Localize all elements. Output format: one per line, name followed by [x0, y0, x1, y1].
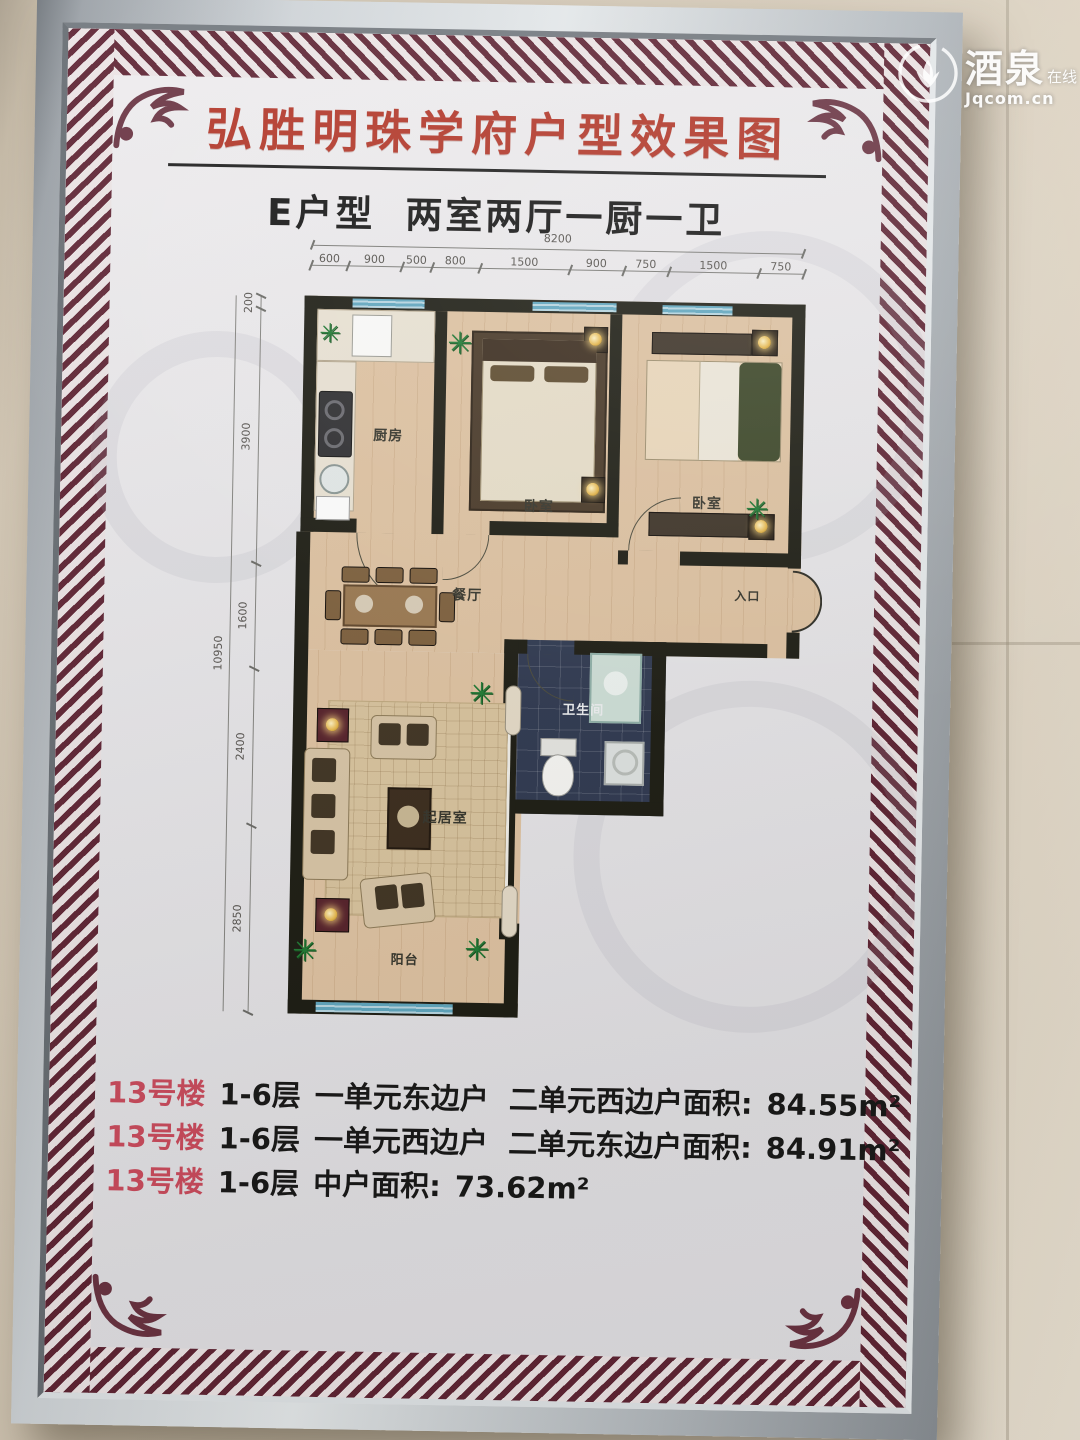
bedroom2-dresser	[648, 512, 748, 538]
bedroom2-window	[662, 305, 732, 315]
corner-flourish-icon	[88, 1271, 167, 1350]
watermark-name: 酒泉	[965, 47, 1045, 91]
room-label-kitchen: 厨房	[373, 425, 403, 446]
dining-chair	[341, 566, 369, 583]
plant-icon: ✳	[292, 936, 318, 966]
wall	[786, 632, 799, 658]
dining-chair	[325, 590, 342, 620]
unit-description: 中户面积:	[313, 1163, 441, 1207]
silver-picture-frame: 弘胜明珠学府户型效果图 E户型两室两厅一厨一卫 8200 600 900 500…	[11, 0, 963, 1440]
room-label-bedroom1: 卧室	[524, 496, 554, 517]
building-number: 13号楼	[105, 1159, 204, 1203]
bedroom2-dresser	[652, 332, 752, 356]
bedroom2-throw	[738, 363, 782, 462]
dining-chair	[408, 630, 436, 647]
wall	[680, 552, 801, 568]
cushion	[311, 794, 335, 818]
floor-range: 1-6层	[218, 1117, 300, 1161]
kitchen-appliance	[316, 496, 350, 521]
bedroom2-bedding	[698, 362, 740, 461]
dining-chair	[375, 567, 403, 584]
corner-flourish-icon	[806, 86, 885, 165]
kitchen-sink	[352, 314, 393, 357]
bedroom1-headboard	[483, 339, 597, 363]
floor-range: 1-6层	[217, 1161, 299, 1205]
bedroom1-bed	[480, 339, 597, 503]
plant-icon: ✳	[464, 936, 490, 966]
floor-range: 1-6层	[219, 1073, 301, 1117]
border-pattern-bottom	[44, 1346, 907, 1408]
site-watermark: 酒泉在线 Jqcom.cn	[895, 38, 1077, 108]
radiator	[501, 885, 518, 937]
room-label-dining: 餐厅	[452, 584, 482, 605]
poster-title: 弘胜明珠学府户型效果图	[66, 90, 929, 172]
corner-flourish-icon	[784, 1284, 863, 1363]
floor-plan: ✳ ✳ ✳ ✳ ✳ ✳ 厨房 卧室 卧室 餐厅 入口 卫生间 起居室 阳台	[288, 296, 813, 1025]
wall	[489, 521, 618, 537]
border-pattern-top	[68, 28, 931, 90]
plant-icon: ✳	[745, 496, 769, 524]
plant-icon: ✳	[319, 321, 341, 347]
pillow	[490, 365, 534, 382]
cushion	[406, 724, 428, 746]
tile-grout-line	[952, 642, 1080, 645]
corner-flourish-icon	[110, 73, 189, 152]
cushion	[310, 830, 334, 854]
watermark-name-suffix: 在线	[1047, 68, 1077, 86]
pillow	[544, 366, 588, 383]
lotus-logo-icon	[895, 40, 961, 106]
area-value: 73.62m²	[454, 1166, 589, 1211]
dining-chair	[409, 568, 437, 585]
unit-description: 一单元西边户 二单元东边户面积:	[314, 1119, 752, 1169]
cushion	[401, 883, 425, 909]
wall	[618, 550, 628, 564]
room-label-bathroom: 卫生间	[562, 699, 604, 719]
radiator	[505, 685, 522, 735]
cushion	[312, 758, 336, 782]
room-label-bedroom2: 卧室	[692, 493, 722, 514]
entrance-door-swing	[792, 571, 823, 634]
cushion	[378, 723, 400, 745]
wall	[649, 642, 666, 816]
plant-icon: ✳	[469, 680, 495, 710]
kitchen-window	[353, 298, 425, 308]
area-notes: 13号楼 1-6层 一单元东边户 二单元西边户面积: 84.55m² 13号楼 …	[105, 1071, 901, 1216]
toilet-bowl	[542, 754, 575, 797]
bedroom1-window	[532, 302, 616, 313]
room-label-balcony: 阳台	[390, 949, 418, 969]
frame-inner-bevel: 弘胜明珠学府户型效果图 E户型两室两厅一厨一卫 8200 600 900 500…	[37, 22, 936, 1414]
dimension-chain-left: 10950 200 3900 1600 2400 2850	[201, 295, 262, 1012]
building-number: 13号楼	[106, 1115, 205, 1159]
unit-description: 一单元东边户 二单元西边户面积:	[314, 1075, 752, 1125]
dining-chair	[374, 629, 402, 646]
dining-chair	[340, 628, 368, 645]
plant-icon: ✳	[447, 329, 473, 359]
room-label-entrance: 入口	[734, 587, 760, 604]
cushion	[375, 884, 399, 910]
tile-grout-line	[1006, 0, 1009, 1440]
floorplan-poster: 弘胜明珠学府户型效果图 E户型两室两厅一厨一卫 8200 600 900 500…	[44, 28, 931, 1408]
room-label-living: 起居室	[422, 807, 467, 828]
building-number: 13号楼	[107, 1071, 206, 1115]
area-value: 84.55m²	[766, 1083, 901, 1128]
unit-type: E户型	[267, 191, 376, 236]
area-value: 84.91m²	[765, 1127, 900, 1172]
wall	[501, 799, 663, 816]
